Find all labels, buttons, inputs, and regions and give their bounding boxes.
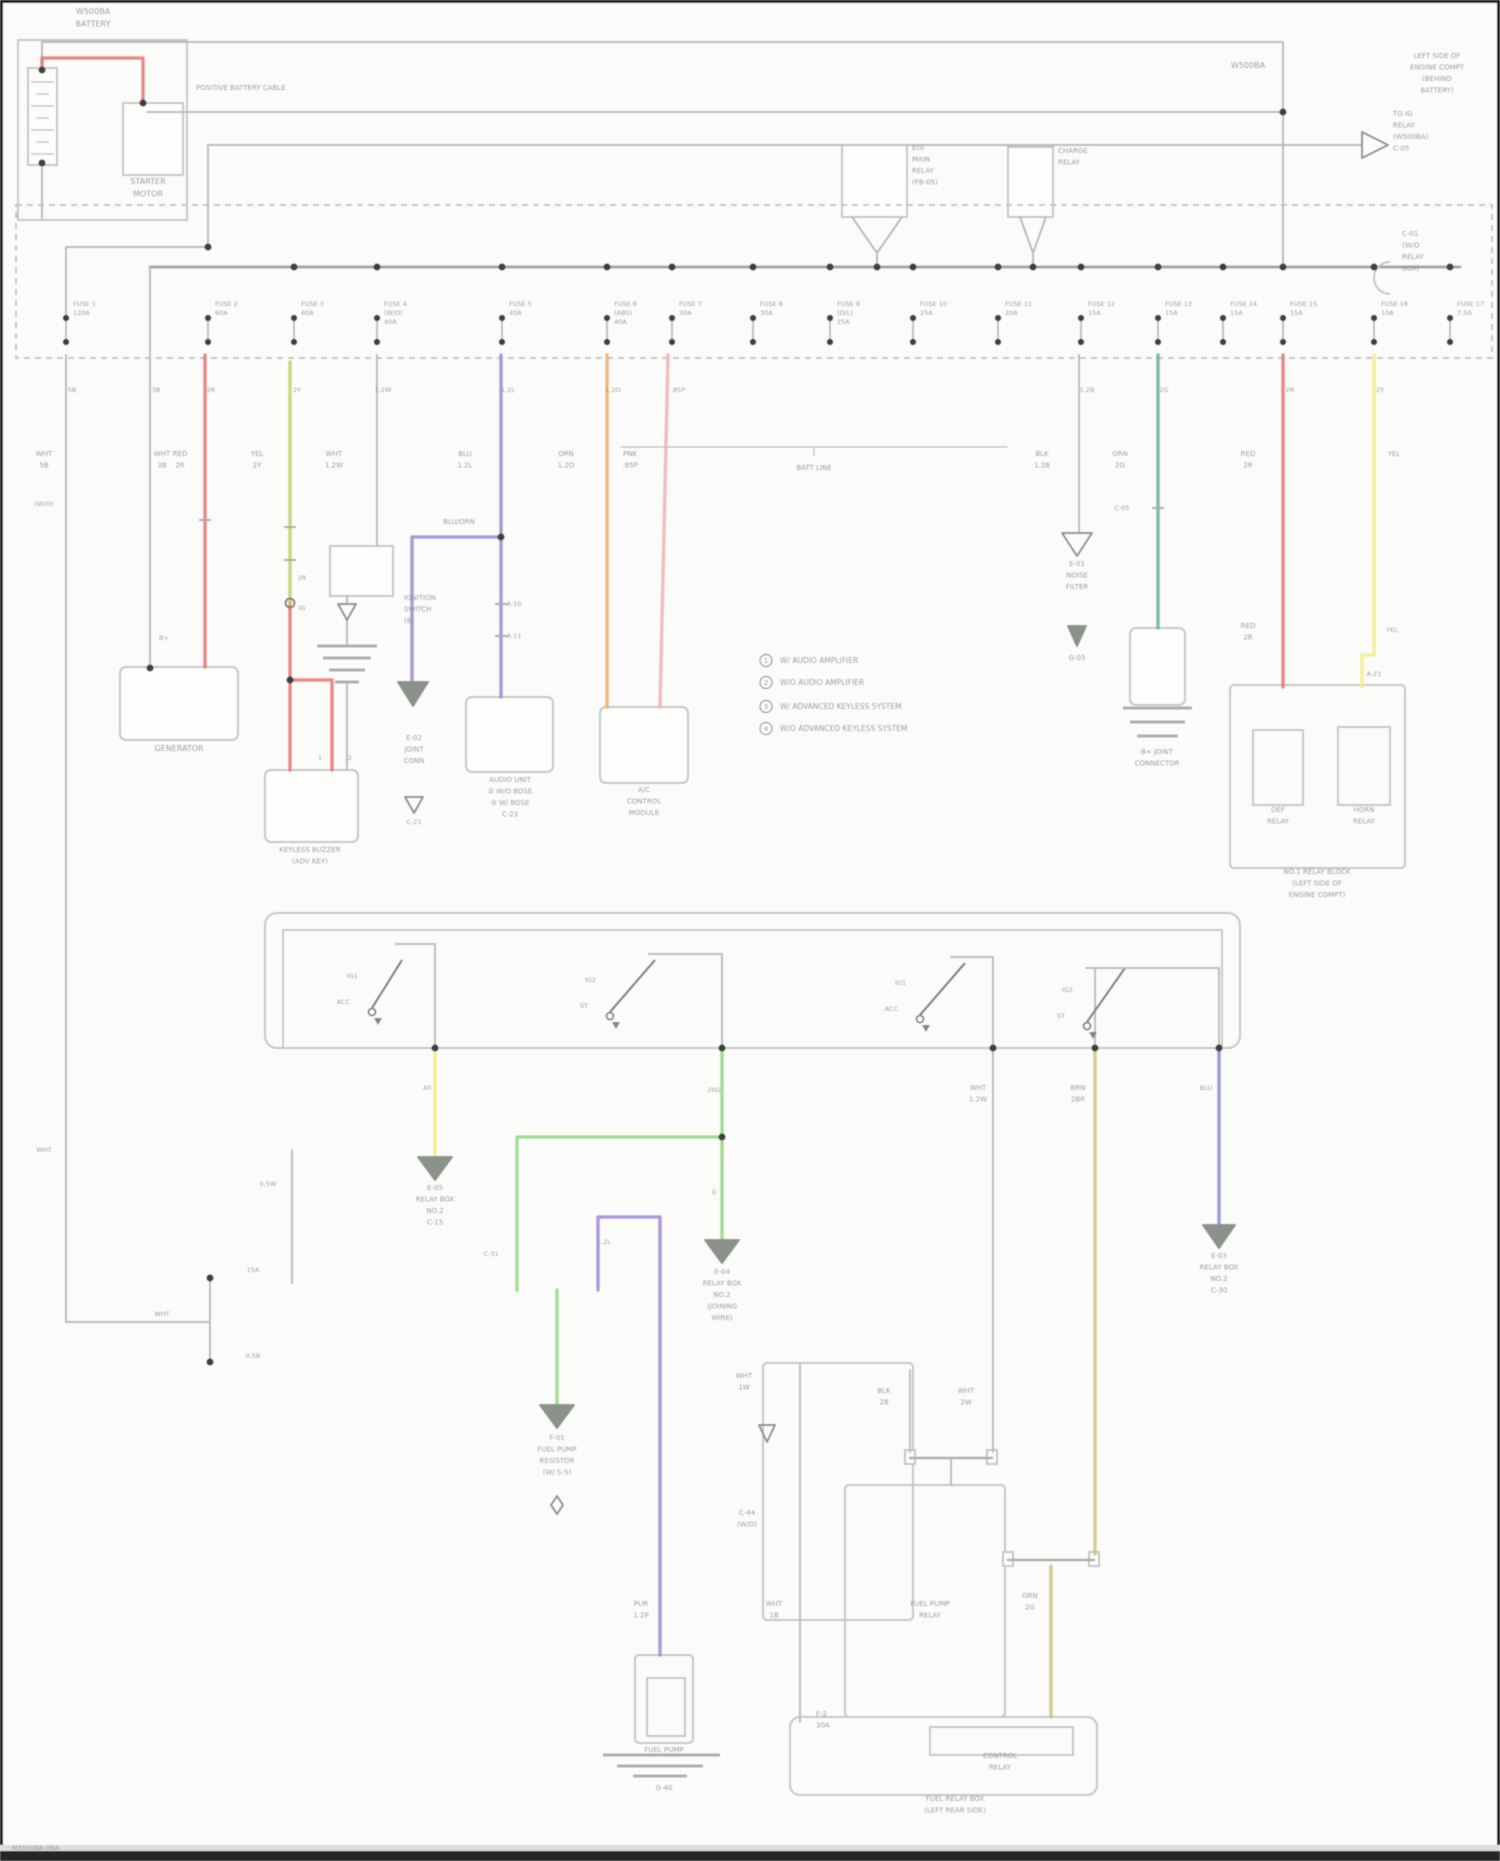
bplus-label-line: CONNECTOR (1135, 760, 1180, 768)
ig-relay-label-line: C-05 (1393, 145, 1409, 153)
junction-dot (1091, 1044, 1098, 1051)
m20-line: 20G (707, 1086, 720, 1094)
joint-conn-label: E-02JOINTCONN (403, 734, 424, 765)
w607-label-line: 1.2O (558, 462, 575, 470)
ac-label-line: CONTROL (627, 798, 661, 806)
m16: WHT (154, 1310, 169, 1318)
w377-label-line: 1.2W (325, 462, 343, 470)
junction-dot (38, 159, 45, 166)
legend-item-text: W/ AUDIO AMPLIFIER (780, 656, 858, 665)
x800-label-line: 1B (769, 1612, 778, 1620)
fuse-terminal-bottom (1220, 339, 1226, 345)
egi-relay-label-line: (FB-05) (912, 179, 938, 187)
fuse-label-line: 30A (679, 309, 692, 317)
yellow-stack-label-line: RELAY BOX (416, 1196, 455, 1204)
legend-number-text: 3 (764, 703, 768, 711)
fuse-label-line: 40A (614, 318, 627, 326)
junction-dot (286, 676, 293, 683)
note-bar-label-line: BATT LINE (796, 464, 831, 472)
fuse-label-line: 25A (920, 309, 933, 317)
fuse-terminal-bottom (291, 339, 297, 345)
fuse-label-line: 10A (1381, 309, 1394, 317)
m11-line: 2R (1286, 386, 1295, 394)
w607-label-line: ORN (558, 450, 574, 458)
audio-label-line: ② W/O BOSE (488, 788, 533, 796)
fuse-terminal-bottom (1078, 339, 1084, 345)
fuse-label-line: FUSE 13 (1165, 300, 1192, 308)
junction-dot (603, 263, 610, 270)
olive-low-label-line: GRN (1022, 1592, 1038, 1600)
w150-label-line: 3B (157, 462, 166, 470)
starter-label-line: STARTER (130, 177, 166, 186)
m9: 1.2B (1080, 386, 1095, 394)
footer-strip (0, 1845, 1500, 1851)
olive-label-line: 2BR (1071, 1096, 1085, 1104)
resistor-stack-label-line: F-01 (549, 1434, 564, 1442)
pin1-line: 1 (318, 754, 322, 762)
fuse-terminal-bottom (1371, 339, 1377, 345)
m4-line: 2Y (293, 386, 301, 394)
blue-stack-label-line: NO.2 (1210, 1275, 1227, 1283)
fuse-label-line: FUSE 11 (1005, 300, 1032, 308)
horn-relay-label-line: RELAY (1353, 818, 1376, 826)
legend-number: 3 (764, 703, 768, 711)
fuse-terminal-bottom (750, 339, 756, 345)
fuse-label-line: (D/L) (837, 309, 853, 317)
w1158-label-line: GRN (1112, 450, 1128, 458)
footer-bar (0, 1851, 1500, 1861)
fuse-terminal-top (827, 315, 833, 321)
fuse-terminal-bottom (1447, 339, 1453, 345)
junction-dot (718, 1044, 725, 1051)
m10-line: 2G (1159, 386, 1168, 394)
purple-low-label-line: PUR (634, 1600, 648, 1608)
junction-dot (994, 263, 1001, 270)
m2: 3B (152, 386, 161, 394)
fuel-pump-label: FUEL PUMP (644, 1746, 683, 1754)
m8-line: .85P (671, 386, 685, 394)
legend-number: 1 (764, 657, 768, 665)
m28: YEL (1385, 626, 1398, 634)
fuse-label-line: FUSE 7 (679, 300, 702, 308)
g40-label: G-40 (656, 1784, 673, 1792)
m5: 1.2W (375, 386, 392, 394)
fp-relay-label-line: RELAY (919, 1612, 942, 1620)
m6: 1.2L (501, 386, 515, 394)
junction-dot (1370, 263, 1377, 270)
m18: 0.5B (246, 1352, 261, 1360)
yellow-stack-label-line: C-15 (427, 1219, 443, 1227)
switch-label-2: ST (580, 1002, 588, 1010)
fuse-label-line: FUSE 4 (384, 300, 407, 308)
ac-control-module-box (600, 707, 688, 783)
g05-label-line: G-05 (1069, 654, 1086, 662)
ac-label-line: A/C (638, 786, 650, 794)
fuse-label-line: (W/O) (384, 309, 403, 317)
m19-line: 40 (423, 1084, 431, 1092)
m12-line: 2Y (1376, 386, 1384, 394)
m14-line: IG (299, 604, 306, 612)
w1081-label-line: BLK (1035, 450, 1049, 458)
junction-dot (989, 1044, 996, 1051)
junction-dot (290, 263, 297, 270)
generator-box (120, 667, 238, 740)
generator-label: GENERATOR (154, 744, 204, 753)
fuse-label-line: 120A (73, 309, 90, 317)
m9-line: 1.2B (1080, 386, 1095, 394)
x993-label-line: WHT (970, 1084, 987, 1092)
m1-line: 5B (68, 386, 77, 394)
junction-dot (497, 533, 504, 540)
w672-label-line: PNK (623, 450, 637, 458)
junction-dot (373, 263, 380, 270)
starter-motor-box (123, 103, 183, 175)
wiring-diagram-page: FUSE 1120AFUSE 260AFUSE 360AFUSE 4(W/O)4… (0, 0, 1500, 1861)
legend-item-text: W/ ADVANCED KEYLESS SYSTEM (780, 702, 902, 711)
fuse-terminal-bottom (1155, 339, 1161, 345)
blue-stack-label-line: E-03 (1211, 1252, 1227, 1260)
charge-relay-label-line: CHARGE (1058, 147, 1088, 155)
ig-relay-label-line: RELAY (1393, 122, 1416, 130)
fuse-label-line: 40A (384, 318, 397, 326)
fuse-terminal-bottom (374, 339, 380, 345)
junction-dot (1215, 1044, 1222, 1051)
green-stack-label-line: NO.2 (713, 1291, 730, 1299)
c44-label-line: C-44 (739, 1509, 756, 1517)
charge-relay-label-line: RELAY (1058, 159, 1081, 167)
ignition-b-label-line: IGNITION (404, 594, 436, 602)
x910-label-line: 2B (879, 1399, 888, 1407)
keyless-buzzer-box (265, 770, 358, 842)
j-arrow-label-line: 1W (738, 1384, 749, 1392)
def-relay-label-line: RELAY (1267, 818, 1290, 826)
junction-dot (1279, 263, 1286, 270)
m13: 2R (298, 574, 307, 582)
fuse-terminal-top (1447, 315, 1453, 321)
keyless-label-line: KEYLESS BUZZER (279, 846, 341, 854)
w1081-label-line: 1.2B (1034, 462, 1050, 470)
fuse-label-line: 30A (760, 309, 773, 317)
fuse-terminal-top (374, 315, 380, 321)
m14: IG (299, 604, 306, 612)
fuse-label-line: FUSE 12 (1088, 300, 1115, 308)
control-relay-label-line: CONTROL (983, 1752, 1017, 1760)
fuse-label-line: FUSE 14 (1230, 300, 1257, 308)
purple-low-label-line: 1.2P (633, 1612, 648, 1620)
w1283-label2-line: RED (1241, 622, 1256, 630)
junction-dot (1029, 263, 1036, 270)
relay-block-label: NO.1 RELAY BLOCK(LEFT SIDE OFENGINE COMP… (1284, 868, 1351, 899)
fuse-label-line: 60A (215, 309, 228, 317)
m25: WHT (36, 1146, 51, 1154)
egi-relay-label-line: RELAY (912, 167, 935, 175)
m23-line: 1.2L (597, 1238, 611, 1246)
junction-dot (749, 263, 756, 270)
x910-label-line: BLK (877, 1387, 891, 1395)
w1374-label-line: YEL (1387, 450, 1401, 458)
m2-line: 3B (152, 386, 161, 394)
junction-dot (1219, 263, 1226, 270)
fuse-terminal-top (1371, 315, 1377, 321)
fuse-label-line: 15A (1290, 309, 1303, 317)
junction-dot (1077, 263, 1084, 270)
m26-line: (W/O) (35, 500, 54, 508)
switch-label-1-text: IG2 (585, 976, 596, 984)
m21: G (711, 1188, 716, 1196)
m16-line: WHT (154, 1310, 169, 1318)
m27: B+ (159, 634, 169, 642)
pin2-line: 2 (348, 754, 352, 762)
fuse-label-line: 15A (1165, 309, 1178, 317)
resistor-stack-label-line: FUEL PUMP (537, 1446, 576, 1454)
w672-label-line: .85P (622, 462, 637, 470)
note-bar-label: BATT LINE (796, 464, 831, 472)
fuse-label-line: FUSE 6 (614, 300, 637, 308)
egi-relay-label-line: MAIN (912, 156, 930, 164)
fuse-terminal-top (63, 315, 69, 321)
ignition-b-label-line: (B) (404, 617, 415, 625)
junction-dot (139, 99, 146, 106)
switch-label-1-text: IG1 (895, 979, 906, 987)
noise-filter-label-line: E-01 (1069, 560, 1085, 568)
relay-block-label-line: (LEFT SIDE OF (1292, 880, 1342, 888)
c44-label-line: (W/O) (737, 1521, 758, 1529)
battery-title-line: W500BA (76, 7, 111, 16)
wiring-diagram-canvas: FUSE 1120AFUSE 260AFUSE 360AFUSE 4(W/O)4… (0, 0, 1500, 1861)
w1158-label-line: 2G (1115, 462, 1125, 470)
junction-dot (206, 1358, 213, 1365)
fuse-label-line: 15A (1088, 309, 1101, 317)
fuse-label-line: 15A (1230, 309, 1243, 317)
fuse-terminal-top (750, 315, 756, 321)
location-top-right-line: (BEHIND (1422, 75, 1452, 83)
m18-line: 0.5B (246, 1352, 261, 1360)
m32: BLU (1200, 1084, 1213, 1092)
junction-dot (718, 1133, 725, 1140)
fuse-label-line: (ABS) (614, 309, 632, 317)
joint-conn-label-line: CONN (404, 757, 425, 765)
starter-label-line: MOTOR (133, 190, 163, 199)
fuse-label-line: FUSE 15 (1290, 300, 1317, 308)
legend-item-label: W/O AUDIO AMPLIFIER (780, 678, 864, 687)
w1374-label: YEL (1387, 450, 1401, 458)
fuse-terminal-bottom (604, 339, 610, 345)
legend-item-label: W/ AUDIO AMPLIFIER (780, 656, 858, 665)
location-top-right-line: LEFT SIDE OF (1414, 52, 1461, 60)
yellow-stack-label-line: NO.2 (426, 1207, 443, 1215)
fuse-terminal-bottom (827, 339, 833, 345)
g05-label: G-05 (1069, 654, 1086, 662)
fuse-terminal-bottom (499, 339, 505, 345)
charge-relay-box (1008, 147, 1053, 217)
location-top-right-line: ENGINE COMPT (1410, 64, 1465, 72)
w294-label-line: 2Y (253, 462, 262, 470)
audio-unit-box (466, 697, 553, 772)
footer-code: MX500BA-0NA (12, 1844, 60, 1852)
pin1: 1 (318, 754, 322, 762)
fuse-terminal-top (995, 315, 1001, 321)
legend-item-label: W/ ADVANCED KEYLESS SYSTEM (780, 702, 902, 711)
keyless-label-line: (ADV KEY) (292, 858, 328, 866)
m6-line: 1.2L (501, 386, 515, 394)
noise-filter-label-line: NOISE (1066, 572, 1088, 580)
switch-label-1: IG1 (895, 979, 906, 987)
junction-dot (431, 1044, 438, 1051)
m30-line: A-10 (507, 600, 522, 608)
g40-label-line: G-40 (656, 1784, 673, 1792)
legend-item-label: W/O ADVANCED KEYLESS SYSTEM (780, 724, 908, 733)
audio-label-line: C-23 (502, 811, 518, 819)
fuse-label-line: FUSE 10 (920, 300, 947, 308)
fuse-label-line: FUSE 1 (73, 300, 96, 308)
switch-label-1: IG1 (347, 972, 358, 980)
m30: A-10 (507, 600, 522, 608)
m25-line: WHT (36, 1146, 51, 1154)
relay-block-label-line: NO.1 RELAY BLOCK (1284, 868, 1351, 876)
junction-dot (1446, 263, 1453, 270)
x992-label-line: WHT (958, 1387, 975, 1395)
def-relay-label-line: DEF (1271, 806, 1285, 814)
ignition-b-label-line: SWITCH (404, 606, 431, 614)
olive-low-label-line: 2G (1025, 1604, 1035, 1612)
m15-line: 0.5W (260, 1180, 277, 1188)
j-arrow-label-line: WHT (736, 1372, 753, 1380)
fuse-label-line: FUSE 17 (1457, 300, 1484, 308)
m7: 1.2O (605, 386, 620, 394)
fuse-label-line: 7.5A (1457, 309, 1472, 317)
switch-label-2-text: ST (1057, 1012, 1065, 1020)
resistor-stack-label-line: RESISTOR (540, 1457, 575, 1465)
w1283-label2-line: 2R (1243, 634, 1252, 642)
junction-dot (826, 263, 833, 270)
x993-label-line: 1.2W (969, 1096, 987, 1104)
fuel-box-label-line: FUEL RELAY BOX (926, 1795, 985, 1803)
junction-dot (1154, 263, 1161, 270)
olive-label-line: BRN (1071, 1084, 1086, 1092)
w66-label-line: WHT (36, 450, 53, 458)
ig-relay-label-line: (W500BA) (1393, 133, 1429, 141)
m13-line: 2R (298, 574, 307, 582)
legend-item-text: W/O ADVANCED KEYLESS SYSTEM (780, 724, 908, 733)
m27-line: B+ (159, 634, 169, 642)
junction-dot (1279, 108, 1286, 115)
switch-label-2: ACC (885, 1005, 899, 1013)
w1283-label-line: 2R (1243, 462, 1252, 470)
m17-line: 15A (247, 1266, 260, 1274)
switch-label-2: ACC (337, 998, 351, 1006)
right-connector-label-line: (W/O (1402, 242, 1420, 250)
m29-line: A-21 (1367, 670, 1382, 678)
green-stack-label-line: WIRE) (711, 1314, 732, 1322)
m3: 2R (207, 386, 216, 394)
fuse-terminal-top (205, 315, 211, 321)
fuse-terminal-top (910, 315, 916, 321)
code-top-right-line: W500BA (1231, 61, 1266, 70)
right-connector-label-line: RELAY (1402, 253, 1425, 261)
resistor-stack-label-line: (W/ S-S) (543, 1469, 572, 1477)
junction-dot (498, 263, 505, 270)
fuse-label-line: 20A (1005, 309, 1018, 317)
m8: .85P (671, 386, 685, 394)
pin2: 2 (348, 754, 352, 762)
fuse-terminal-top (1155, 315, 1161, 321)
relay-block-label-line: ENGINE COMPT) (1289, 891, 1346, 899)
fuse-terminal-top (1280, 315, 1286, 321)
w66-label-line: 5B (39, 462, 48, 470)
legend-number-text: 4 (764, 725, 769, 733)
joint-conn-label-line: JOINT (403, 746, 424, 754)
c21-label: C-21 (406, 818, 421, 826)
m12: 2Y (1376, 386, 1384, 394)
fuse-label-line: 40A (509, 309, 522, 317)
location-top-right-line: BATTERY) (1420, 87, 1454, 95)
ignition-switch-b-box (330, 546, 393, 596)
m23: 1.2L (597, 1238, 611, 1246)
green-stack-label-line: E-04 (714, 1268, 730, 1276)
w502-label-line: 1.2L (457, 462, 472, 470)
fuse-terminal-top (291, 315, 297, 321)
bplus-label-line: B+ JOINT (1141, 748, 1174, 756)
fuse-label-line: FUSE 3 (301, 300, 324, 308)
fuse-terminal-bottom (1280, 339, 1286, 345)
fuse-label-line: FUSE 9 (837, 300, 860, 308)
m3-line: 2R (207, 386, 216, 394)
diagram-root: FUSE 1120AFUSE 260AFUSE 360AFUSE 4(W/O)4… (0, 0, 1500, 1861)
audio-label-line: ③ W/ BOSE (490, 799, 529, 807)
fuse-label-line: FUSE 5 (509, 300, 532, 308)
junction-dot (909, 263, 916, 270)
fuel-box-label-line: (LEFT REAR SIDE) (924, 1807, 986, 1815)
footer-code-line: MX500BA-0NA (12, 1844, 60, 1852)
egi-relay-label-line: EGI (912, 144, 924, 152)
m24-line: C-05 (1114, 504, 1129, 512)
m4: 2Y (293, 386, 301, 394)
legend-item-text: W/O AUDIO AMPLIFIER (780, 678, 864, 687)
junction-dot (206, 1274, 213, 1281)
m20: 20G (707, 1086, 720, 1094)
m31-line: A-11 (507, 632, 522, 640)
blue-stack-label-line: C-30 (1211, 1287, 1227, 1295)
m10: 2G (1159, 386, 1168, 394)
switch-label-1-text: IG1 (347, 972, 358, 980)
egi-main-relay-box (842, 145, 907, 217)
m28-line: YEL (1385, 626, 1398, 634)
m7-line: 1.2O (605, 386, 620, 394)
m21-line: G (711, 1188, 716, 1196)
c21-label-line: C-21 (406, 818, 421, 826)
junction-dot (204, 243, 211, 250)
horn-relay-label-line: HORN (1354, 806, 1375, 814)
junction-dot (38, 66, 45, 73)
fuse-label-line: FUSE 8 (760, 300, 783, 308)
purple-junction-label-line: BLU/ORN (443, 518, 474, 526)
m32-line: BLU (1200, 1084, 1213, 1092)
w205-label-line: RED (173, 450, 188, 458)
blue-stack-label-line: RELAY BOX (1200, 1264, 1239, 1272)
w502-label-line: BLU (458, 450, 471, 458)
m19: 40 (423, 1084, 431, 1092)
fp-relay-label-line: FUEL PUMP (910, 1600, 949, 1608)
fuse-terminal-bottom (669, 339, 675, 345)
fuse-terminal-bottom (995, 339, 1001, 345)
switch-label-2: ST (1057, 1012, 1065, 1020)
m29: A-21 (1367, 670, 1382, 678)
ig-relay-label-line: TO IG (1392, 110, 1413, 118)
battery-cable-label: POSITIVE BATTERY CABLE (196, 84, 286, 92)
right-connector-label-line: BOX) (1402, 265, 1420, 273)
audio-label-line: AUDIO UNIT (489, 776, 532, 784)
battery-title-line: BATTERY (76, 20, 111, 29)
